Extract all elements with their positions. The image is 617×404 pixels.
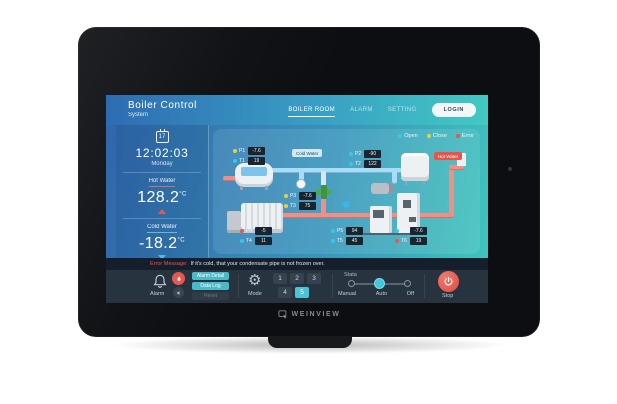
hot-water-value: 128.2°C bbox=[137, 189, 187, 207]
nav-boiler-room[interactable]: BOILER ROOM bbox=[288, 107, 335, 113]
hot-water-pipe-vertical bbox=[449, 167, 454, 218]
sensor-status-dot bbox=[233, 159, 237, 163]
hot-water-number: 128.2 bbox=[137, 189, 179, 206]
circulation-pump bbox=[371, 183, 393, 194]
cold-water-pipe bbox=[271, 168, 403, 173]
sensor-label: T4 bbox=[246, 238, 253, 244]
control-divider bbox=[332, 274, 333, 298]
cabinet-panel bbox=[409, 217, 416, 222]
mode-button-2[interactable]: 2 bbox=[290, 273, 304, 284]
cabinet-panel bbox=[373, 210, 384, 218]
sensor-status-dot bbox=[331, 229, 335, 233]
burner-unit bbox=[227, 211, 241, 233]
sensor-label: P5 bbox=[337, 228, 344, 234]
stop-button[interactable] bbox=[438, 271, 459, 292]
nav-alarm[interactable]: ALARM bbox=[350, 107, 373, 113]
weinview-logo-icon bbox=[278, 310, 288, 319]
sensor-row-p4: P4-5 bbox=[240, 227, 272, 235]
cold-water-label: Cold Water bbox=[147, 224, 177, 233]
green-valve-icon bbox=[316, 185, 331, 199]
control-cabinet-small bbox=[370, 206, 392, 233]
clock-weekday: Monday bbox=[151, 161, 172, 167]
header-bar: Boiler Control System BOILER ROOMALARMSE… bbox=[106, 95, 488, 125]
bezel-led-dot bbox=[508, 167, 512, 171]
login-button[interactable]: LOGIN bbox=[432, 103, 476, 117]
tank-foot bbox=[240, 186, 243, 190]
legend-item-error: Error bbox=[456, 133, 474, 139]
sensor-value: -7.6 bbox=[248, 147, 265, 155]
sensor-value: -5 bbox=[255, 227, 272, 235]
page-title: Boiler Control bbox=[128, 100, 197, 111]
cold-water-unit: °C bbox=[177, 238, 185, 244]
sensor-value: 19 bbox=[410, 237, 427, 245]
mode-button-3[interactable]: 3 bbox=[307, 273, 321, 284]
tank-window bbox=[241, 167, 267, 176]
sensor-group-p2-t2: P2-90T2122 bbox=[349, 150, 381, 170]
sensor-row-p2: P2-90 bbox=[349, 150, 381, 158]
screen-body: 17 12:02:03 Monday Hot Water 128.2°C Col… bbox=[106, 125, 488, 258]
page: Boiler Control System BOILER ROOMALARMSE… bbox=[0, 0, 617, 404]
mode-gear-icon: ⚙ bbox=[248, 271, 261, 289]
pump-valve-icon bbox=[296, 179, 306, 189]
app-title-block: Boiler Control System bbox=[128, 100, 197, 118]
sensor-group-p3-t3: P3-7.6T375 bbox=[284, 192, 316, 212]
sensor-label: T2 bbox=[355, 161, 362, 167]
sensor-status-dot bbox=[349, 162, 353, 166]
cold-water-number: -18.2 bbox=[139, 235, 177, 252]
mode-number-grid: 12345 bbox=[273, 273, 325, 298]
legend-item-close: Close bbox=[427, 133, 447, 139]
mode-button-1[interactable]: 1 bbox=[273, 273, 287, 284]
mode-button-4[interactable]: 4 bbox=[278, 287, 292, 298]
sensor-status-dot bbox=[395, 239, 399, 243]
sensor-group-p1-t1: P1-7.6T119 bbox=[233, 147, 265, 167]
trend-up-icon bbox=[158, 209, 166, 214]
brand-logo: WEINVIEW bbox=[78, 310, 540, 319]
tank-foot bbox=[423, 181, 425, 185]
state-option-auto[interactable]: Auto bbox=[376, 291, 387, 297]
tank-foot bbox=[265, 186, 268, 190]
sensor-row-t3: T375 bbox=[284, 202, 316, 210]
hmi-device-bezel: Boiler Control System BOILER ROOMALARMSE… bbox=[78, 27, 540, 337]
sensor-label: T3 bbox=[290, 203, 297, 209]
cold-water-pipe-label: Cold Water bbox=[292, 149, 322, 157]
sensor-label: P1 bbox=[239, 148, 246, 154]
sensor-group-p5-t5: P594T545 bbox=[331, 227, 363, 247]
state-options: ManualAutoOff bbox=[338, 291, 414, 297]
error-message-bar: Error Message: If it's cold, that your c… bbox=[106, 258, 488, 270]
legend-dot bbox=[427, 134, 431, 138]
sensor-value: -90 bbox=[364, 150, 381, 158]
state-label: Stata bbox=[344, 272, 357, 278]
sensor-label: T1 bbox=[239, 158, 246, 164]
legend-dot bbox=[456, 134, 460, 138]
sensor-row-p3: P3-7.6 bbox=[284, 192, 316, 200]
piping-diagram-panel: OpenCloseError bbox=[213, 129, 480, 254]
sensor-value: 45 bbox=[346, 237, 363, 245]
error-message-text: If it's cold, that your condensate pipe … bbox=[191, 261, 325, 267]
hot-water-pipe bbox=[267, 213, 454, 218]
sensor-status-dot bbox=[240, 229, 244, 233]
sensor-label: P2 bbox=[355, 151, 362, 157]
sensor-status-dot bbox=[233, 149, 237, 153]
sensor-row-t2: T2122 bbox=[349, 160, 381, 168]
hot-water-label: Hot Water bbox=[149, 178, 176, 187]
cold-water-value: -18.2°C bbox=[139, 235, 185, 253]
sensor-value: 122 bbox=[364, 160, 381, 168]
legend-dot bbox=[398, 134, 402, 138]
sensor-row-p6: P6-7.6 bbox=[395, 227, 427, 235]
hot-water-section: Hot Water 128.2°C bbox=[116, 173, 208, 218]
hmi-screen: Boiler Control System BOILER ROOMALARMSE… bbox=[106, 95, 488, 303]
sensor-row-p1: P1-7.6 bbox=[233, 147, 265, 155]
sensor-status-dot bbox=[349, 152, 353, 156]
sensor-row-p5: P594 bbox=[331, 227, 363, 235]
sensor-label: T6 bbox=[401, 238, 408, 244]
sensor-label: P6 bbox=[401, 228, 408, 234]
sensor-status-dot bbox=[284, 194, 288, 198]
mode-button-5[interactable]: 5 bbox=[295, 287, 309, 298]
state-option-manual[interactable]: Manual bbox=[338, 291, 356, 297]
sensor-value: 75 bbox=[299, 202, 316, 210]
sensor-group-p6-t6: P6-7.6T619 bbox=[395, 227, 427, 247]
stop-label: Stop bbox=[442, 293, 453, 299]
status-sidebar: 17 12:02:03 Monday Hot Water 128.2°C Col… bbox=[116, 125, 209, 258]
state-knob-auto[interactable] bbox=[374, 278, 385, 289]
sensor-status-dot bbox=[240, 239, 244, 243]
valve-riser-pipe bbox=[321, 171, 326, 186]
sensor-label: P3 bbox=[290, 193, 297, 199]
water-drop-sensor-icon bbox=[342, 200, 352, 210]
sensor-value: -7.6 bbox=[299, 192, 316, 200]
sensor-label: T5 bbox=[337, 238, 344, 244]
legend-item-open: Open bbox=[398, 133, 417, 139]
state-knob-manual[interactable] bbox=[348, 280, 355, 287]
sensor-status-dot bbox=[284, 204, 288, 208]
alarm-active-button[interactable] bbox=[172, 272, 185, 285]
state-option-off[interactable]: Off bbox=[407, 291, 414, 297]
sensor-value: 11 bbox=[255, 237, 272, 245]
sensor-status-dot bbox=[331, 239, 335, 243]
alarm-detail-button[interactable]: Alarm Detail bbox=[192, 272, 229, 280]
control-divider bbox=[424, 274, 425, 298]
status-legend: OpenCloseError bbox=[398, 133, 474, 139]
reset-button[interactable]: Reset bbox=[192, 292, 229, 300]
cold-water-pipe-drop bbox=[392, 171, 397, 184]
clock-section: 17 12:02:03 Monday bbox=[116, 125, 208, 172]
sensor-row-t1: T119 bbox=[233, 157, 265, 165]
main-nav: BOILER ROOMALARMSETTINGLOGIN bbox=[288, 95, 476, 125]
mute-button[interactable] bbox=[173, 287, 184, 298]
sensor-row-t4: T411 bbox=[240, 237, 272, 245]
calendar-icon: 17 bbox=[156, 131, 169, 143]
nav-setting[interactable]: SETTING bbox=[388, 107, 417, 113]
tank-foot bbox=[405, 181, 407, 185]
sensor-value: -7.6 bbox=[410, 227, 427, 235]
control-divider bbox=[238, 274, 239, 298]
sensor-group-p4-t4: P4-5T411 bbox=[240, 227, 272, 247]
hot-water-pipe-label: Hot Water bbox=[434, 152, 462, 160]
data-log-button[interactable]: Data Log bbox=[192, 282, 229, 290]
page-subtitle: System bbox=[128, 112, 197, 118]
sensor-value: 94 bbox=[346, 227, 363, 235]
storage-tank bbox=[401, 153, 429, 181]
alarm-bell-icon[interactable] bbox=[152, 273, 168, 289]
hot-water-unit: °C bbox=[179, 192, 187, 198]
sensor-row-t6: T619 bbox=[395, 237, 427, 245]
alarm-label: Alarm bbox=[150, 291, 164, 297]
cabinet-panel bbox=[403, 200, 411, 208]
brand-name: WEINVIEW bbox=[292, 311, 341, 318]
sensor-label: P4 bbox=[246, 228, 253, 234]
sensor-status-dot bbox=[395, 229, 399, 233]
sensor-row-t5: T545 bbox=[331, 237, 363, 245]
mode-label: Mode bbox=[248, 291, 262, 297]
sensor-value: 19 bbox=[248, 157, 265, 165]
error-message-label: Error Message: bbox=[150, 261, 188, 267]
clock-time: 12:02:03 bbox=[135, 146, 188, 160]
state-knob-off[interactable] bbox=[404, 280, 411, 287]
control-bar: Alarm Alarm Detail Data Log Reset ⚙ Mode… bbox=[106, 270, 488, 303]
